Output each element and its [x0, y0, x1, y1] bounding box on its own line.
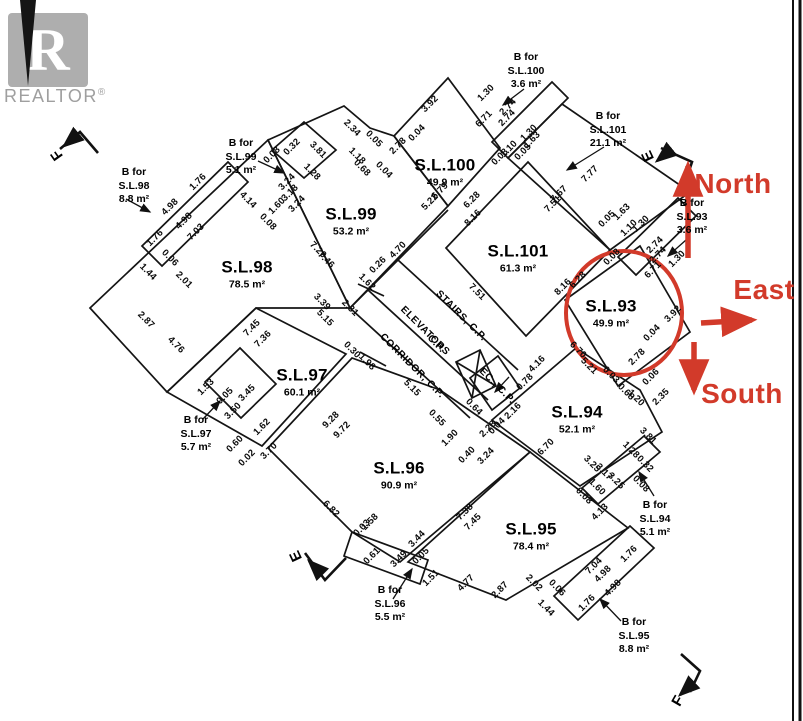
unit-name: S.L.93: [585, 297, 636, 317]
balcony-label-line: S.L.97: [181, 427, 212, 441]
balcony-label-line: 3.6 m²: [508, 78, 545, 92]
balcony-label-line: 3.6 m²: [677, 224, 708, 238]
balcony-label-sl97: B forS.L.975.7 m²: [181, 414, 212, 455]
unit-name: S.L.99: [325, 205, 376, 225]
unit-name: S.L.96: [373, 459, 424, 479]
east-arrow-icon: [701, 320, 752, 323]
balcony-label-line: S.L.93: [677, 210, 708, 224]
corner-marker-e-bottomleft-bracket: [305, 553, 346, 580]
balcony-label-sl98: B forS.L.988.8 m²: [119, 166, 150, 207]
unit-label-sl97: S.L.9760.1 m²: [276, 366, 327, 399]
unit-area: 52.1 m²: [551, 424, 602, 436]
balcony-label-line: 8.8 m²: [119, 193, 150, 207]
unit-label-sl101: S.L.10161.3 m²: [488, 242, 549, 275]
unit-label-sl99: S.L.9953.2 m²: [325, 205, 376, 238]
unit-label-sl93: S.L.9349.9 m²: [585, 297, 636, 330]
balcony-label-line: 5.5 m²: [375, 611, 406, 625]
unit-name: S.L.100: [415, 156, 476, 176]
balcony-label-line: 8.8 m²: [619, 643, 650, 657]
balcony-label-line: S.L.98: [119, 179, 150, 193]
balcony-label-line: B for: [119, 166, 150, 180]
compass-label-east: East: [733, 274, 794, 306]
balcony-label-line: B for: [181, 414, 212, 428]
balcony-label-line: 21.1 m²: [590, 137, 627, 151]
balcony-label-line: S.L.99: [226, 150, 257, 164]
balcony-label-line: S.L.96: [375, 597, 406, 611]
unit-area: 78.4 m²: [505, 541, 556, 553]
balcony-label-sl96: B forS.L.965.5 m²: [375, 584, 406, 625]
balcony-label-sl101: B forS.L.10121.1 m²: [590, 110, 627, 151]
balcony-label-sl100: B forS.L.1003.6 m²: [508, 51, 545, 92]
balcony-label-sl95: B forS.L.958.8 m²: [619, 616, 650, 657]
unit-label-sl94: S.L.9452.1 m²: [551, 403, 602, 436]
balcony-label-sl93: B forS.L.933.6 m²: [677, 197, 708, 238]
balcony-label-line: B for: [640, 499, 671, 513]
balcony-label-line: S.L.95: [619, 629, 650, 643]
unit-label-sl98: S.L.9878.5 m²: [221, 258, 272, 291]
balcony-label-line: 5.1 m²: [640, 526, 671, 540]
balcony-label-line: S.L.94: [640, 512, 671, 526]
unit-label-sl96: S.L.9690.9 m²: [373, 459, 424, 492]
balcony-label-line: B for: [619, 616, 650, 630]
compass-label-north: North: [694, 168, 771, 200]
balcony-label-line: B for: [375, 584, 406, 598]
balcony-label-line: S.L.101: [590, 123, 627, 137]
corner-marker-f-topleft-arrow: [64, 136, 76, 146]
compass-label-south: South: [701, 378, 783, 410]
balcony-label-line: 5.7 m²: [181, 441, 212, 455]
balcony-label-sl94: B forS.L.945.1 m²: [640, 499, 671, 540]
unit-area: 49.9 m²: [585, 318, 636, 330]
unit-label-sl95: S.L.9578.4 m²: [505, 520, 556, 553]
unit-area: 90.9 m²: [373, 480, 424, 492]
strata-plan-page: R REALTOR®: [0, 0, 803, 721]
unit-area: 60.1 m²: [276, 387, 327, 399]
corner-marker-f-topleft-bracket: [60, 132, 98, 153]
unit-name: S.L.98: [221, 258, 272, 278]
unit-area: 53.2 m²: [325, 226, 376, 238]
balcony-label-line: S.L.100: [508, 64, 545, 78]
unit-name: S.L.101: [488, 242, 549, 262]
corner-marker-e-bottomleft-arrow: [309, 561, 320, 572]
balcony-label-line: 5.1 m²: [226, 164, 257, 178]
arrow-b-sl101: [567, 147, 604, 170]
corner-marker-e-topright-arrow: [657, 152, 668, 161]
unit-area: 78.5 m²: [221, 279, 272, 291]
unit-name: S.L.95: [505, 520, 556, 540]
balcony-label-line: B for: [226, 137, 257, 151]
unit-name: S.L.94: [551, 403, 602, 423]
balcony-label-line: B for: [508, 51, 545, 65]
balcony-label-sl99: B forS.L.995.1 m²: [226, 137, 257, 178]
balcony-label-line: B for: [590, 110, 627, 124]
unit-area: 61.3 m²: [488, 263, 549, 275]
unit-name: S.L.97: [276, 366, 327, 386]
